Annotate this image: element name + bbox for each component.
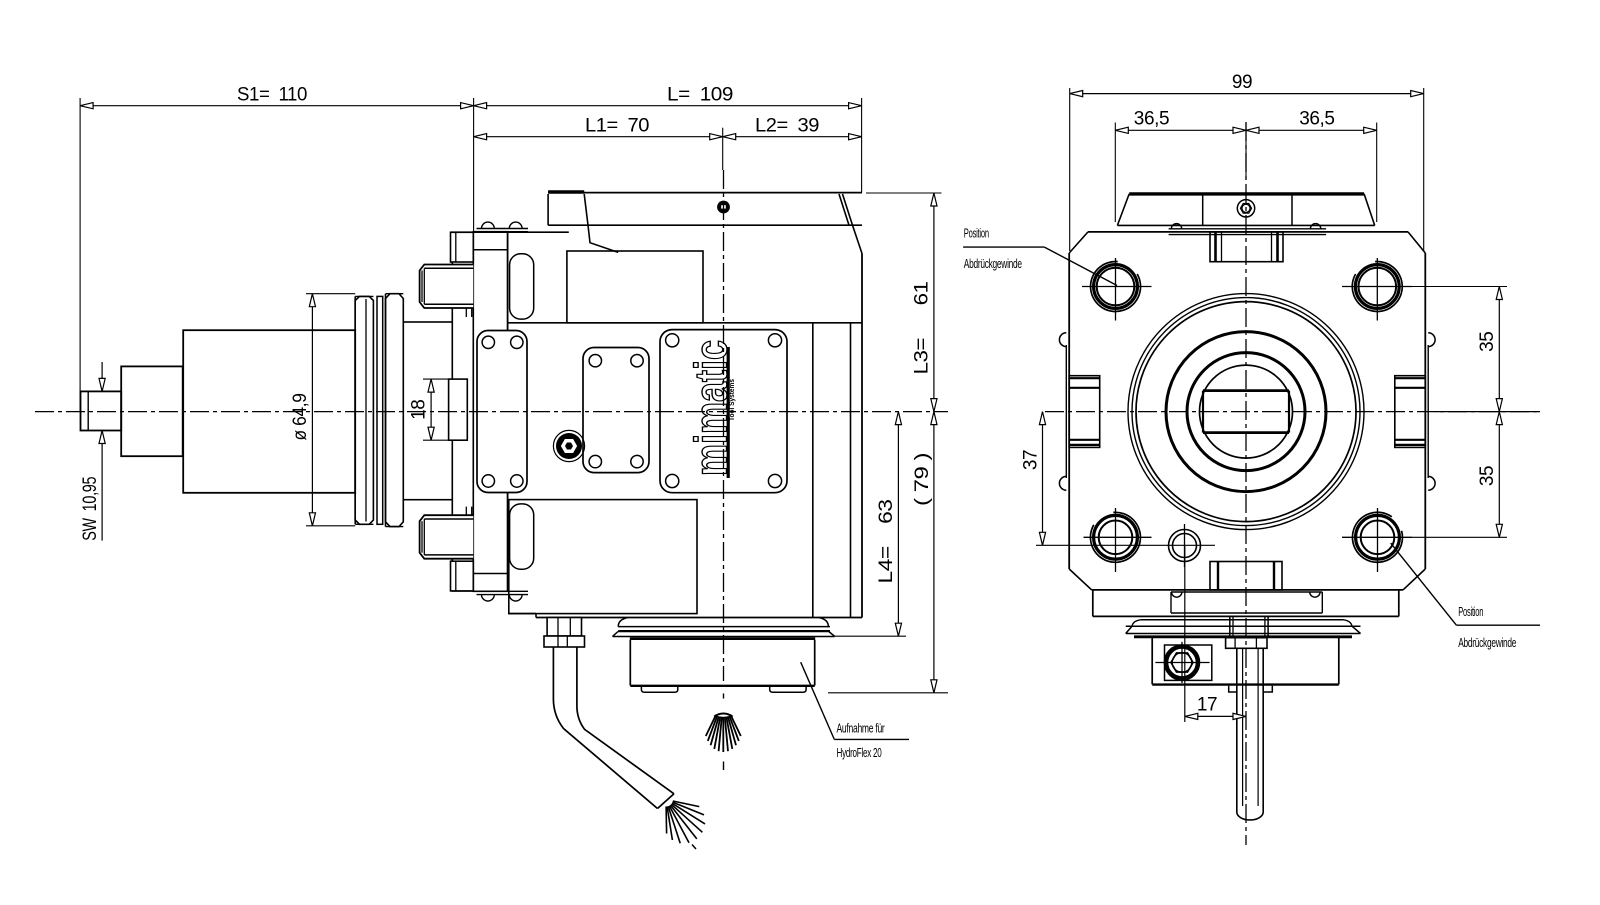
- svg-text:L4= 63: L4= 63: [876, 500, 897, 584]
- svg-text:L2= 39: L2= 39: [755, 115, 819, 136]
- svg-text:99: 99: [1232, 72, 1252, 93]
- svg-text:( 79 ): ( 79 ): [912, 453, 933, 506]
- svg-text:35: 35: [1477, 466, 1498, 486]
- svg-text:S1= 110: S1= 110: [237, 85, 307, 106]
- svg-text:Abdrückgewinde: Abdrückgewinde: [964, 257, 1022, 271]
- svg-text:36,5: 36,5: [1134, 109, 1169, 130]
- svg-text:Aufnahme für: Aufnahme für: [837, 721, 885, 735]
- svg-text:Position: Position: [964, 227, 989, 241]
- svg-text:Position: Position: [1458, 605, 1483, 619]
- svg-text:SW 10,95: SW 10,95: [80, 477, 101, 541]
- svg-text:L1= 70: L1= 70: [585, 115, 649, 136]
- svg-text:Abdrückgewinde: Abdrückgewinde: [1458, 636, 1516, 650]
- svg-text:37: 37: [1020, 450, 1041, 470]
- svg-text:Tool Systems: Tool Systems: [727, 379, 736, 421]
- svg-text:35: 35: [1477, 332, 1498, 352]
- svg-text:HydroFlex 20: HydroFlex 20: [837, 746, 882, 760]
- svg-text:17: 17: [1197, 695, 1217, 716]
- svg-text:L= 109: L= 109: [667, 85, 733, 106]
- svg-text:L3= 61: L3= 61: [912, 282, 933, 375]
- svg-text:36,5: 36,5: [1299, 109, 1334, 130]
- svg-text:18: 18: [409, 400, 430, 420]
- svg-text:ø 64,9: ø 64,9: [290, 394, 311, 441]
